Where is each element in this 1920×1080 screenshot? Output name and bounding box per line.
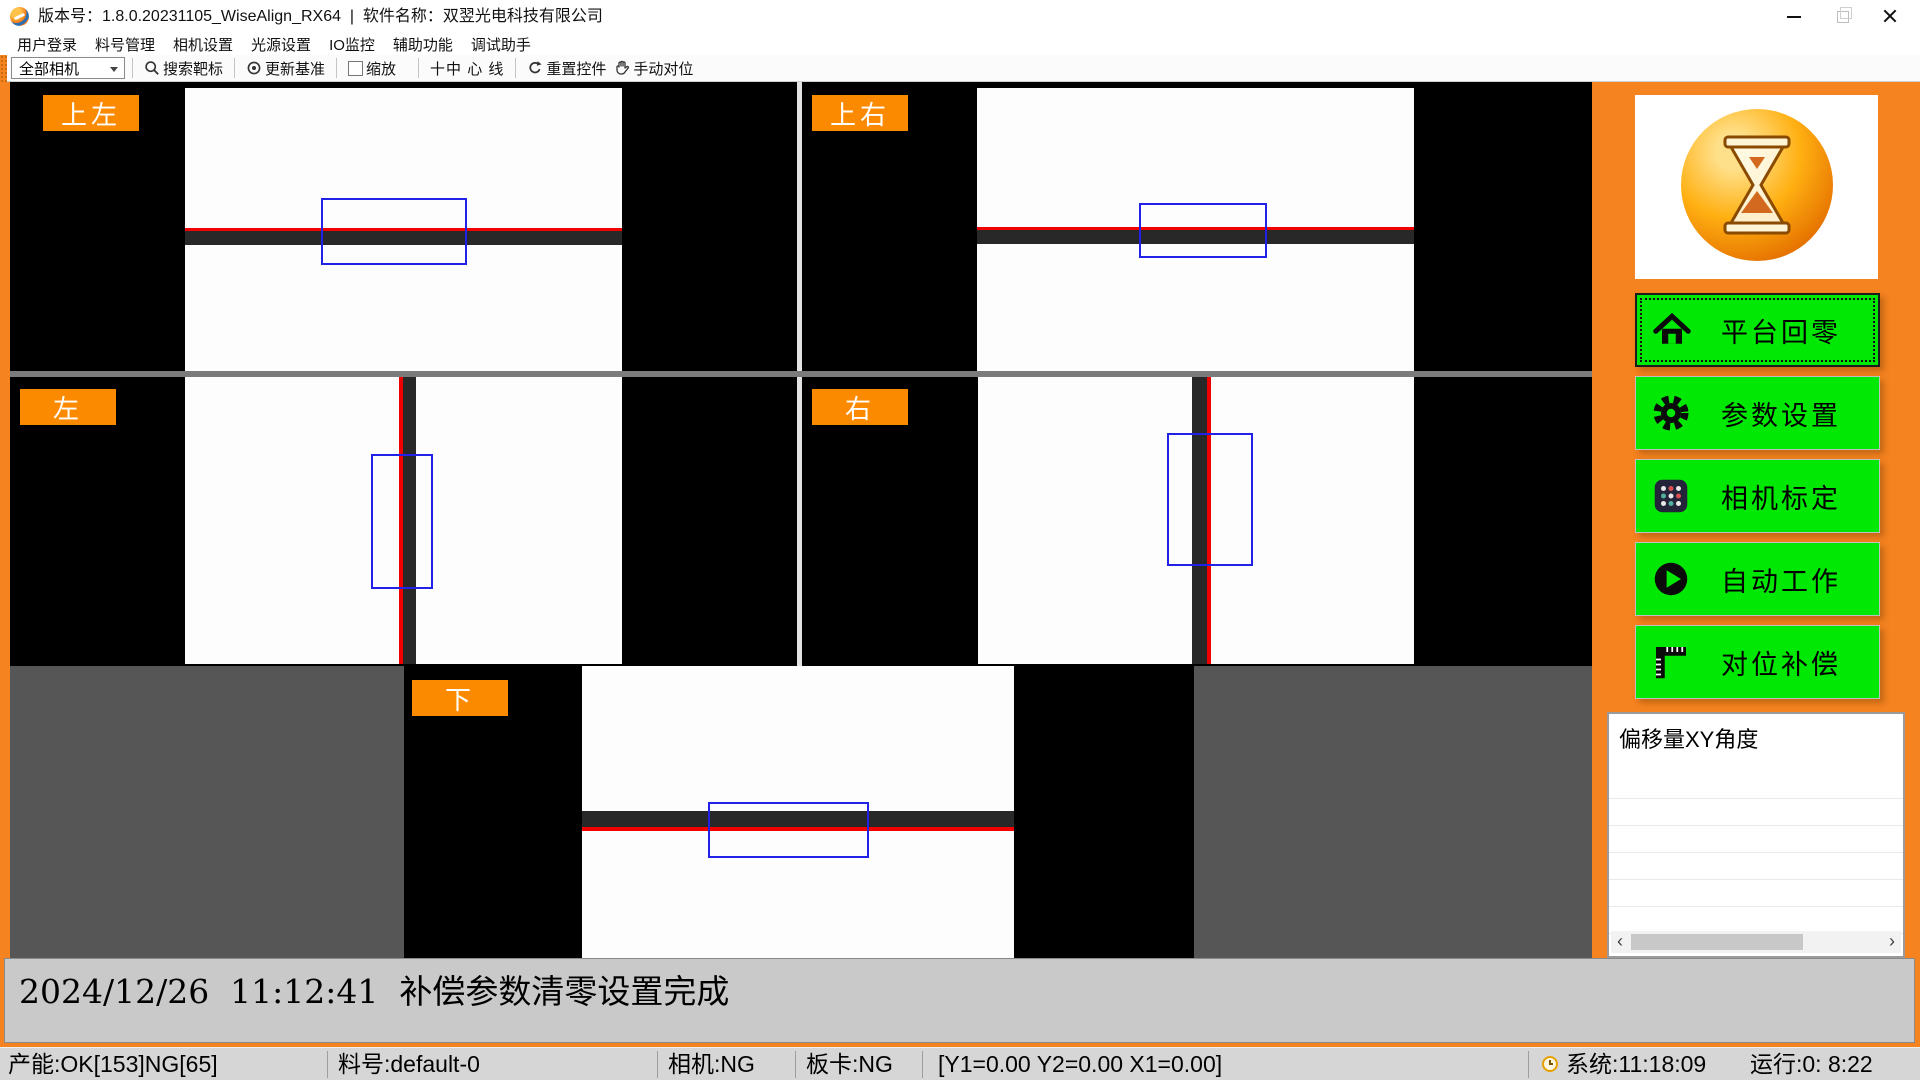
separator [1528,1051,1529,1078]
chevron-down-icon [110,67,118,72]
horizontal-scrollbar[interactable]: ‹ › [1611,931,1901,953]
hourglass-logo-icon [1681,109,1833,261]
manual-align-button[interactable]: 手动对位 [610,58,697,79]
ruler-icon [1649,640,1693,684]
alignment-compensation-button[interactable]: 对位补偿 [1635,625,1880,699]
separator [657,1051,658,1078]
camera-view-top-left: 上左 [10,82,797,371]
camera-view-top-right: 上右 [802,82,1592,371]
zoom-checkbox[interactable]: 缩放 [344,58,400,79]
camera-label-right: 右 [812,389,908,425]
app-window: 版本号：1.8.0.20231105_WiseAlign_RX64 | 软件名称… [0,0,1920,1080]
offset-panel-title: 偏移量XY角度 [1619,722,1758,754]
menu-item-debug-assistant[interactable]: 调试助手 [462,34,540,55]
status-message: 2024/12/26 11:12:41 补偿参数清零设置完成 [19,965,729,1013]
list-item [1609,880,1903,907]
camera-select-value: 全部相机 [19,58,79,79]
update-baseline-button[interactable]: 更新基准 [242,58,329,79]
camera-view-right: 右 [802,377,1592,666]
scrollbar-thumb[interactable] [1631,934,1803,950]
menu-item-light-settings[interactable]: 光源设置 [242,34,320,55]
camera-label-top-left: 上左 [43,95,139,131]
menu-item-camera-settings[interactable]: 相机设置 [164,34,242,55]
play-icon [1649,557,1693,601]
menu-item-user-login[interactable]: 用户登录 [8,34,86,55]
roi-rectangle[interactable] [708,802,869,858]
camera-calibration-button[interactable]: 相机标定 [1635,459,1880,533]
camera-select[interactable]: 全部相机 [11,57,125,79]
camera-view-bottom: 下 [404,666,1194,958]
list-item [1609,907,1903,934]
axis-coordinates: [Y1=0.00 Y2=0.00 X1=0.00] [938,1048,1222,1080]
board-status: 板卡:NG [806,1048,893,1080]
run-time: 运行:0: 8:22 [1750,1048,1873,1080]
calibration-grid-icon [1649,474,1693,518]
platform-home-zero-button[interactable]: 平台回零 [1635,293,1880,367]
roi-rectangle[interactable] [321,198,467,265]
part-number: 料号:default-0 [338,1048,480,1080]
minimize-button[interactable] [1770,0,1818,33]
camera-row-divider [10,371,1592,377]
gear-icon [1649,391,1693,435]
scroll-right-arrow[interactable]: › [1883,931,1901,953]
yield-status: 产能:OK[153]NG[65] [8,1048,218,1080]
sidebar-button-label: 平台回零 [1694,311,1878,350]
hand-icon [614,60,630,76]
clock-icon [1542,1056,1558,1072]
app-logo-icon [10,7,29,26]
list-item [1609,853,1903,880]
toolbar-separator [132,58,133,78]
home-icon [1650,308,1694,352]
minimize-icon [1787,16,1801,18]
status-message-box: 2024/12/26 11:12:41 补偿参数清零设置完成 [4,958,1915,1043]
system-time: 系统:11:18:09 [1566,1048,1706,1080]
window-controls [1770,0,1914,33]
crosshair-options[interactable]: 十中 心 线 [426,58,508,79]
separator [327,1051,328,1078]
list-item [1609,799,1903,826]
roi-rectangle[interactable] [371,454,433,589]
maximize-button[interactable] [1818,0,1866,33]
toolbar: 全部相机 搜索靶标 更新基准 缩放 十中 心 线 重置控件 手动对位 [0,55,1920,82]
parameter-settings-button[interactable]: 参数设置 [1635,376,1880,450]
company-logo [1635,95,1878,279]
checkbox-icon[interactable] [348,61,363,76]
camera-label-left: 左 [20,389,116,425]
camera-label-top-right: 上右 [812,95,908,131]
restore-icon [1837,11,1849,23]
list-item [1609,826,1903,853]
list-item [1609,772,1903,799]
offset-list [1609,772,1903,934]
scroll-left-arrow[interactable]: ‹ [1611,931,1629,953]
menu-item-io-monitor[interactable]: IO监控 [320,34,384,55]
offset-xy-angle-panel: 偏移量XY角度 ‹ › [1607,712,1905,958]
menu-item-aux-functions[interactable]: 辅助功能 [384,34,462,55]
title-bar: 版本号：1.8.0.20231105_WiseAlign_RX64 | 软件名称… [0,0,1920,34]
toolbar-grip[interactable] [0,55,7,82]
separator [795,1051,796,1078]
window-title: 版本号：1.8.0.20231105_WiseAlign_RX64 | 软件名称… [38,0,603,33]
roi-rectangle[interactable] [1167,433,1253,566]
camera-label-bottom: 下 [412,680,508,716]
roi-rectangle[interactable] [1139,203,1267,258]
separator [922,1051,923,1078]
search-icon [144,60,160,76]
camera-status: 相机:NG [668,1048,755,1080]
sidebar-button-label: 相机标定 [1693,477,1879,516]
close-button[interactable] [1866,0,1914,33]
search-target-button[interactable]: 搜索靶标 [140,58,227,79]
status-bar: 产能:OK[153]NG[65] 料号:default-0 相机:NG 板卡:N… [0,1047,1920,1080]
reset-arrow-icon [527,60,543,76]
sidebar-button-label: 对位补偿 [1693,643,1879,682]
auto-work-button[interactable]: 自动工作 [1635,542,1880,616]
sidebar-button-label: 自动工作 [1693,560,1879,599]
menu-bar: 用户登录 料号管理 相机设置 光源设置 IO监控 辅助功能 调试助手 [0,33,1920,55]
camera-view-left: 左 [10,377,797,666]
reset-controls-button[interactable]: 重置控件 [523,58,610,79]
target-icon [246,60,262,76]
sidebar-button-label: 参数设置 [1693,394,1879,433]
menu-item-part-management[interactable]: 料号管理 [86,34,164,55]
